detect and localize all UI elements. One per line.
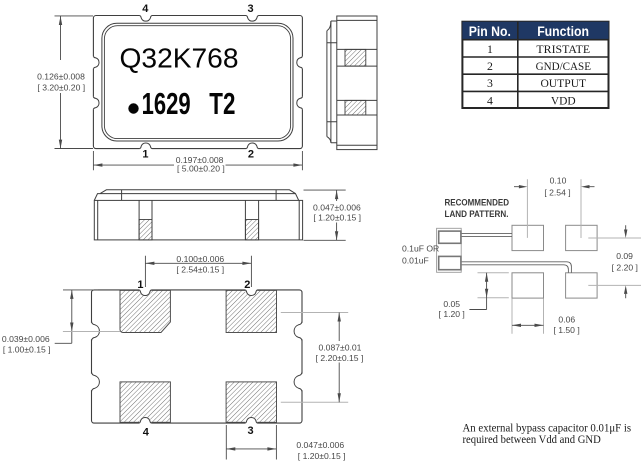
svg-text:4: 4 <box>143 427 150 439</box>
svg-text:LAND PATTERN.: LAND PATTERN. <box>445 209 509 220</box>
svg-text:1: 1 <box>142 149 148 161</box>
svg-text:4: 4 <box>487 93 493 107</box>
svg-text:[ 1.20±0.15 ]: [ 1.20±0.15 ] <box>298 451 346 461</box>
svg-text:0.126±0.008: 0.126±0.008 <box>37 71 85 81</box>
svg-text:3: 3 <box>248 3 254 15</box>
svg-text:0.100±0.006: 0.100±0.006 <box>176 254 224 264</box>
svg-text:[ 2.54±0.15 ]: [ 2.54±0.15 ] <box>176 265 224 275</box>
svg-text:OUTPUT: OUTPUT <box>540 76 586 90</box>
svg-text:[ 1.20±0.15 ]: [ 1.20±0.15 ] <box>313 212 361 222</box>
svg-text:4: 4 <box>142 3 149 15</box>
svg-text:[ 1.20 ]: [ 1.20 ] <box>439 309 465 319</box>
svg-text:0.1uF OR: 0.1uF OR <box>402 243 439 253</box>
svg-text:3: 3 <box>487 76 493 90</box>
svg-text:0.087±0.01: 0.087±0.01 <box>319 343 362 353</box>
svg-text:2: 2 <box>487 59 493 73</box>
svg-text:2: 2 <box>248 148 254 160</box>
svg-text:[ 2.20 ]: [ 2.20 ] <box>612 262 638 272</box>
svg-text:T2: T2 <box>209 86 235 121</box>
svg-text:[ 2.20±0.15 ]: [ 2.20±0.15 ] <box>316 353 364 363</box>
svg-text:RECOMMENDED: RECOMMENDED <box>445 197 510 208</box>
svg-text:[ 1.00±0.15 ]: [ 1.00±0.15 ] <box>3 344 51 354</box>
svg-text:[ 5.00±0.20 ]: [ 5.00±0.20 ] <box>177 163 225 173</box>
svg-text:0.06: 0.06 <box>558 315 575 325</box>
svg-text:Function: Function <box>537 24 589 39</box>
svg-text:0.039±0.006: 0.039±0.006 <box>2 334 50 344</box>
svg-text:0.047±0.006: 0.047±0.006 <box>313 202 361 212</box>
svg-text:0.047±0.006: 0.047±0.006 <box>296 440 344 450</box>
svg-text:Q32K768: Q32K768 <box>120 42 239 73</box>
svg-text:1: 1 <box>137 279 143 291</box>
svg-text:1629: 1629 <box>142 86 191 121</box>
svg-text:0.09: 0.09 <box>616 251 633 261</box>
svg-text:GND/CASE: GND/CASE <box>536 59 591 73</box>
svg-text:3: 3 <box>248 425 254 437</box>
svg-text:[ 3.20±0.20 ]: [ 3.20±0.20 ] <box>37 82 85 92</box>
svg-text:[ 1.50 ]: [ 1.50 ] <box>553 325 579 335</box>
svg-text:0.05: 0.05 <box>443 299 460 309</box>
svg-text:VDD: VDD <box>551 93 576 107</box>
svg-text:required between Vdd and GND: required between Vdd and GND <box>463 433 601 446</box>
svg-text:TRISTATE: TRISTATE <box>536 42 590 56</box>
svg-text:0.10: 0.10 <box>550 175 567 185</box>
svg-text:0.01uF: 0.01uF <box>402 256 429 266</box>
svg-text:[ 2.54 ]: [ 2.54 ] <box>544 187 570 197</box>
svg-text:1: 1 <box>487 42 493 56</box>
svg-text:2: 2 <box>244 279 250 291</box>
svg-text:Pin No.: Pin No. <box>469 24 511 39</box>
